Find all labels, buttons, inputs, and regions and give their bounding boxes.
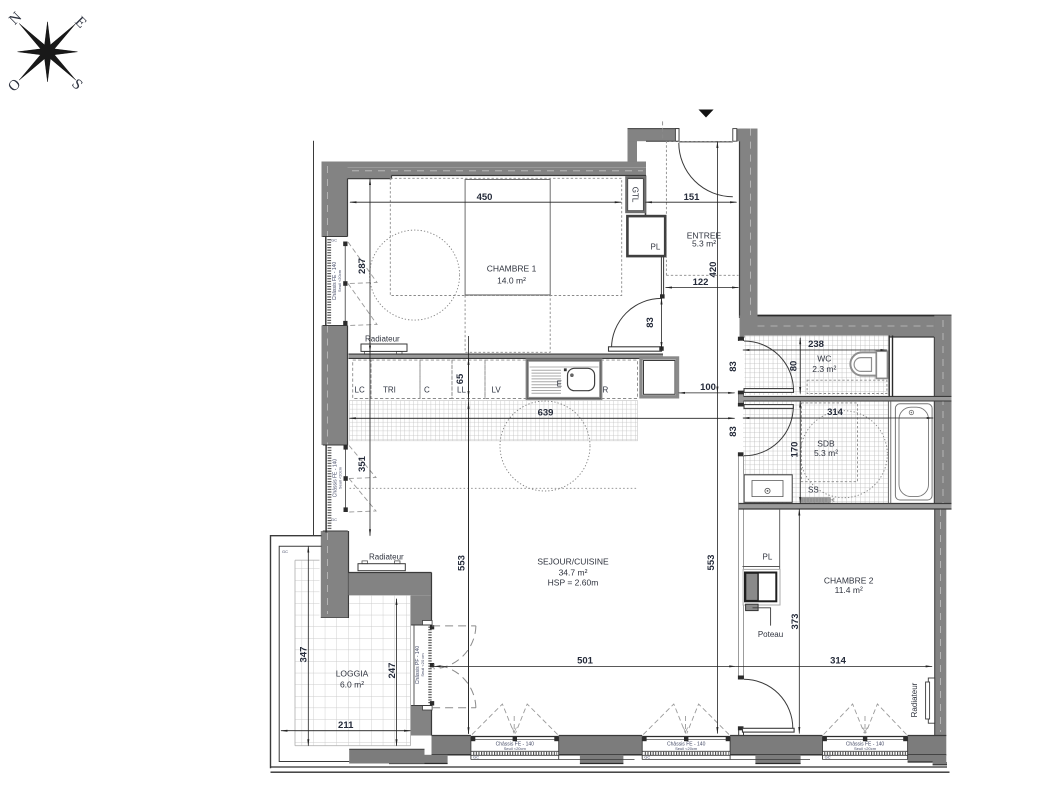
svg-text:GC: GC — [473, 755, 479, 760]
svg-text:420: 420 — [708, 262, 719, 278]
svg-text:Seuil <20cm: Seuil <20cm — [675, 746, 698, 751]
svg-text:211: 211 — [338, 720, 354, 731]
svg-text:14.0 m²: 14.0 m² — [497, 276, 526, 286]
svg-text:83: 83 — [645, 317, 656, 328]
svg-text:C: C — [424, 386, 430, 395]
svg-text:CHAMBRE 2: CHAMBRE 2 — [824, 576, 874, 586]
svg-text:314: 314 — [827, 407, 844, 418]
svg-text:170: 170 — [790, 442, 801, 458]
svg-text:34.7 m²: 34.7 m² — [559, 568, 588, 578]
svg-text:351: 351 — [357, 455, 368, 472]
svg-text:GC: GC — [331, 517, 337, 522]
svg-text:639: 639 — [538, 408, 554, 419]
svg-text:100: 100 — [700, 382, 716, 393]
svg-text:247: 247 — [387, 663, 398, 679]
svg-text:287: 287 — [357, 258, 368, 274]
svg-text:LOGGIA: LOGGIA — [336, 669, 369, 679]
svg-text:6.0 m²: 6.0 m² — [340, 680, 364, 690]
svg-text:GC: GC — [331, 238, 337, 243]
svg-text:314: 314 — [830, 655, 847, 666]
svg-text:Seuil <20 cm: Seuil <20 cm — [420, 653, 425, 677]
svg-text:R: R — [603, 386, 609, 395]
svg-text:GC: GC — [825, 755, 831, 760]
svg-text:E: E — [557, 380, 562, 389]
svg-text:SEJOUR/CUISINE: SEJOUR/CUISINE — [537, 557, 609, 567]
svg-text:11.4 m²: 11.4 m² — [835, 585, 863, 595]
svg-text:HSP = 2.60m: HSP = 2.60m — [548, 578, 599, 588]
svg-text:Seuil <20cm: Seuil <20cm — [338, 466, 343, 489]
svg-text:SDB: SDB — [817, 439, 835, 449]
svg-text:5.3 m²: 5.3 m² — [692, 239, 716, 249]
svg-text:PL: PL — [763, 553, 773, 562]
svg-text:80: 80 — [789, 361, 800, 372]
svg-text:122: 122 — [693, 277, 709, 288]
svg-text:SS: SS — [808, 486, 819, 495]
svg-text:LC: LC — [355, 386, 365, 395]
svg-text:Radiateur: Radiateur — [910, 682, 919, 717]
svg-text:PL: PL — [651, 243, 661, 252]
svg-text:553: 553 — [706, 555, 717, 571]
svg-text:450: 450 — [477, 192, 493, 203]
svg-text:553: 553 — [457, 555, 468, 571]
svg-text:Seuil <20cm: Seuil <20cm — [337, 269, 342, 292]
svg-text:CHAMBRE 1: CHAMBRE 1 — [487, 264, 537, 274]
svg-text:Radiateur: Radiateur — [369, 553, 404, 562]
svg-text:347: 347 — [299, 647, 310, 663]
svg-text:2.3 m²: 2.3 m² — [812, 364, 836, 374]
svg-text:LV: LV — [492, 386, 502, 395]
svg-text:373: 373 — [790, 614, 801, 630]
svg-text:GTL: GTL — [631, 187, 640, 203]
svg-text:LL: LL — [457, 386, 466, 395]
svg-text:Seuil <20cm: Seuil <20cm — [504, 746, 527, 751]
svg-text:238: 238 — [808, 339, 824, 350]
svg-text:TRI: TRI — [383, 386, 396, 395]
svg-text:Seuil <20cm: Seuil <20cm — [854, 746, 877, 751]
svg-text:501: 501 — [577, 655, 594, 666]
svg-text:Poteau: Poteau — [758, 630, 783, 639]
svg-text:GC: GC — [282, 549, 288, 554]
svg-text:151: 151 — [684, 192, 701, 203]
svg-text:WC: WC — [817, 354, 831, 364]
svg-text:83: 83 — [728, 361, 739, 372]
svg-text:83: 83 — [728, 426, 739, 437]
svg-text:GC: GC — [644, 755, 650, 760]
svg-text:5.3 m²: 5.3 m² — [814, 448, 838, 458]
svg-text:65: 65 — [455, 373, 466, 384]
